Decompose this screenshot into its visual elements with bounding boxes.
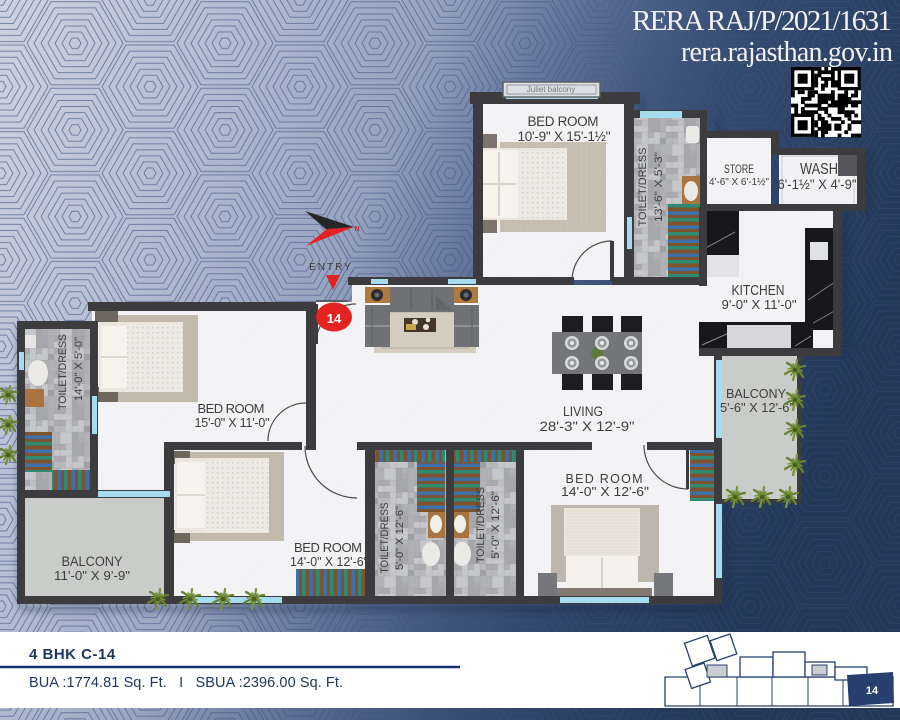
svg-text:10'-9" X 15'-1½": 10'-9" X 15'-1½" bbox=[518, 129, 611, 144]
svg-text:TOILET/DRESS: TOILET/DRESS bbox=[637, 148, 649, 227]
svg-text:6'-1½" X 4'-9": 6'-1½" X 4'-9" bbox=[778, 177, 857, 192]
svg-text:BED ROOM: BED ROOM bbox=[198, 401, 265, 416]
svg-text:STORE: STORE bbox=[724, 162, 754, 176]
svg-text:14'-0" X 5'-0": 14'-0" X 5'-0" bbox=[73, 337, 85, 401]
svg-text:14: 14 bbox=[866, 685, 879, 697]
svg-text:Juliet balcony: Juliet balcony bbox=[527, 85, 575, 94]
svg-text:14'-0" X 12'-6": 14'-0" X 12'-6" bbox=[290, 554, 368, 569]
svg-text:TOILET/DRESS: TOILET/DRESS bbox=[475, 487, 487, 563]
svg-text:4'-6" X 6'-1½": 4'-6" X 6'-1½" bbox=[709, 176, 769, 188]
svg-text:RERA RAJ/P/2021/1631: RERA RAJ/P/2021/1631 bbox=[632, 5, 892, 37]
svg-text:5'-0" X 12'-6": 5'-0" X 12'-6" bbox=[490, 491, 502, 559]
svg-text:14'-0" X 12'-6": 14'-0" X 12'-6" bbox=[561, 484, 649, 499]
svg-text:ENTRY: ENTRY bbox=[309, 262, 353, 273]
svg-text:5'-6" X 12'-6": 5'-6" X 12'-6" bbox=[720, 401, 794, 415]
svg-text:BED ROOM: BED ROOM bbox=[294, 540, 362, 555]
svg-text:9'-0" X 11'-0": 9'-0" X 11'-0" bbox=[722, 297, 797, 312]
svg-text:TOILET/DRESS: TOILET/DRESS bbox=[57, 334, 69, 410]
svg-text:BALCONY: BALCONY bbox=[726, 386, 786, 401]
svg-text:WASH: WASH bbox=[800, 161, 838, 178]
svg-text:BED ROOM: BED ROOM bbox=[528, 114, 599, 129]
svg-text:5'-0" X 12'-6": 5'-0" X 12'-6" bbox=[394, 506, 406, 570]
svg-text:4 BHK C-14: 4 BHK C-14 bbox=[29, 646, 116, 663]
svg-text:BALCONY: BALCONY bbox=[62, 554, 123, 569]
svg-text:13'-6" X 5'-3": 13'-6" X 5'-3" bbox=[653, 152, 665, 222]
svg-text:15'-0" X 11'-0": 15'-0" X 11'-0" bbox=[195, 416, 270, 430]
svg-text:rera.rajasthan.gov.in: rera.rajasthan.gov.in bbox=[681, 37, 893, 68]
svg-text:BUA :1774.81 Sq. Ft. I SBU: BUA :1774.81 Sq. Ft. I SBUA :2396.00 Sq.… bbox=[29, 675, 343, 691]
svg-text:LIVING: LIVING bbox=[563, 403, 603, 419]
svg-text:14: 14 bbox=[327, 311, 342, 326]
svg-text:N: N bbox=[354, 226, 359, 233]
svg-text:11'-0" X 9'-9": 11'-0" X 9'-9" bbox=[54, 568, 130, 583]
svg-text:28'-3" X 12'-9": 28'-3" X 12'-9" bbox=[540, 418, 635, 434]
svg-text:TOILET/DRESS: TOILET/DRESS bbox=[379, 503, 391, 574]
